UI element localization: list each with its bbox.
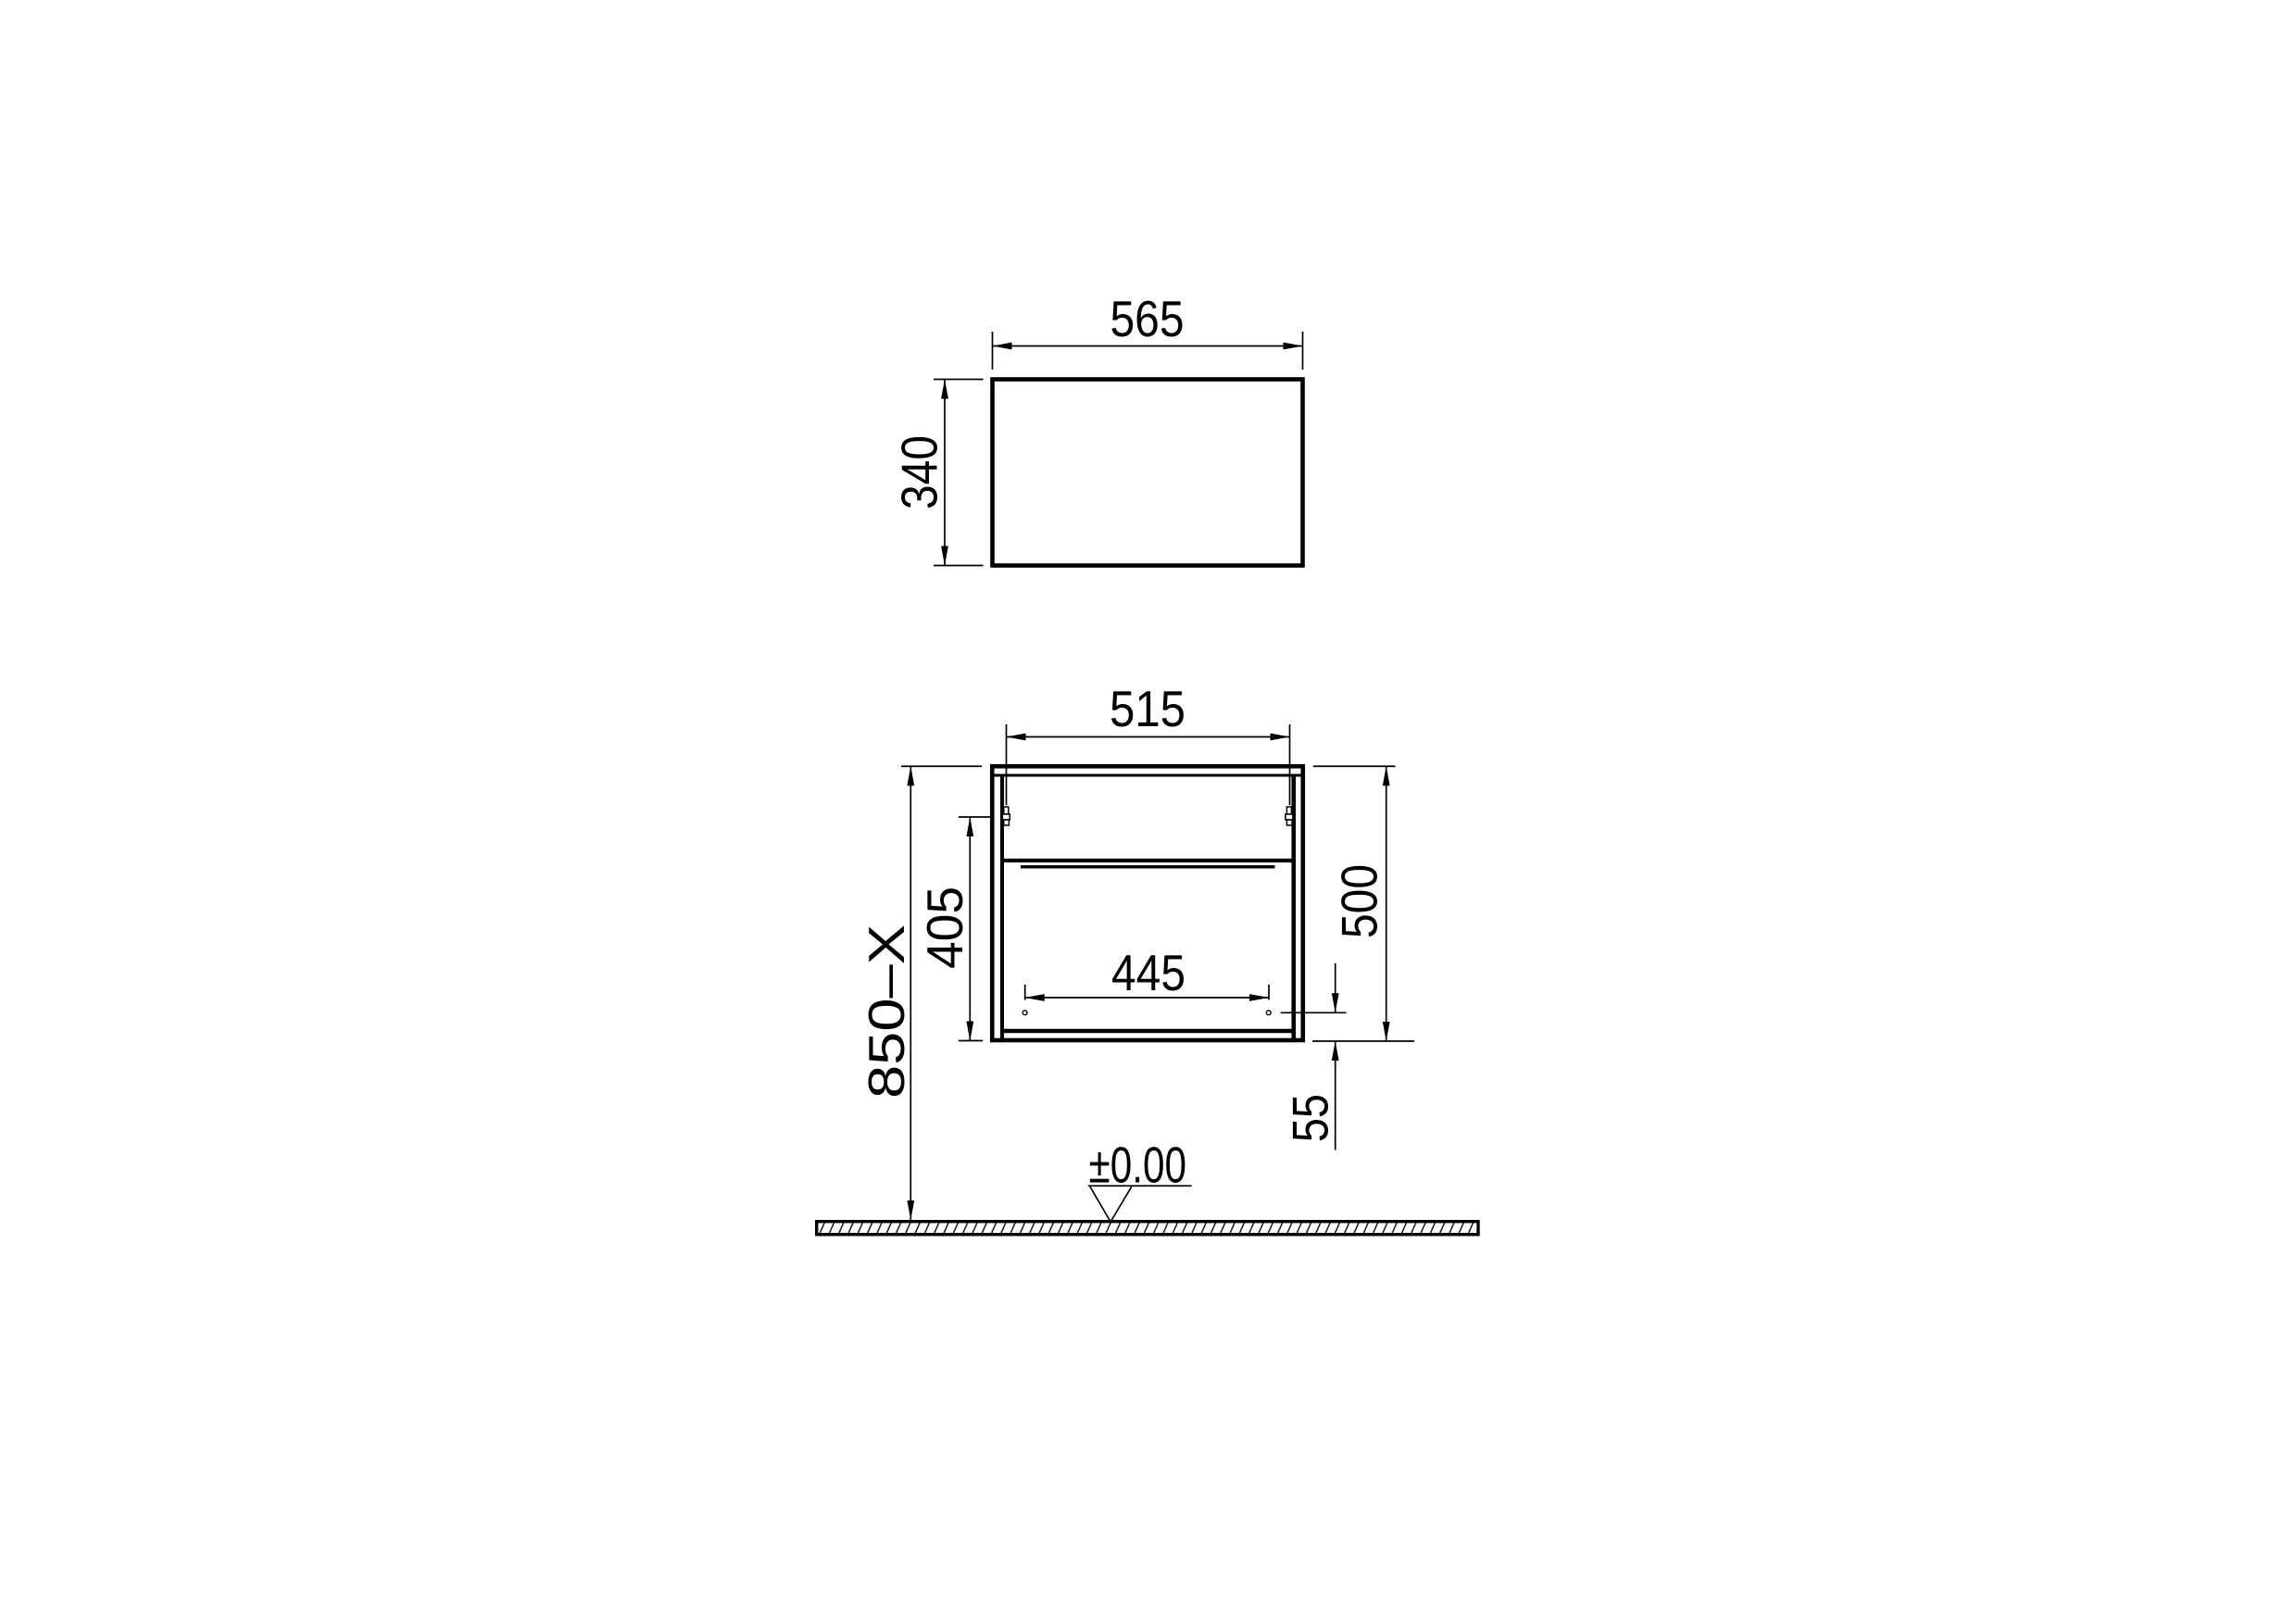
svg-text:515: 515 [1110,680,1186,737]
svg-text:500: 500 [1331,864,1388,938]
svg-text:565: 565 [1110,290,1185,347]
svg-text:55: 55 [1282,1094,1339,1142]
svg-text:850–X: 850–X [858,924,915,1099]
svg-text:405: 405 [916,886,973,969]
svg-text:445: 445 [1111,944,1186,1001]
svg-text:±0.00: ±0.00 [1089,1137,1187,1194]
svg-text:340: 340 [891,435,948,509]
